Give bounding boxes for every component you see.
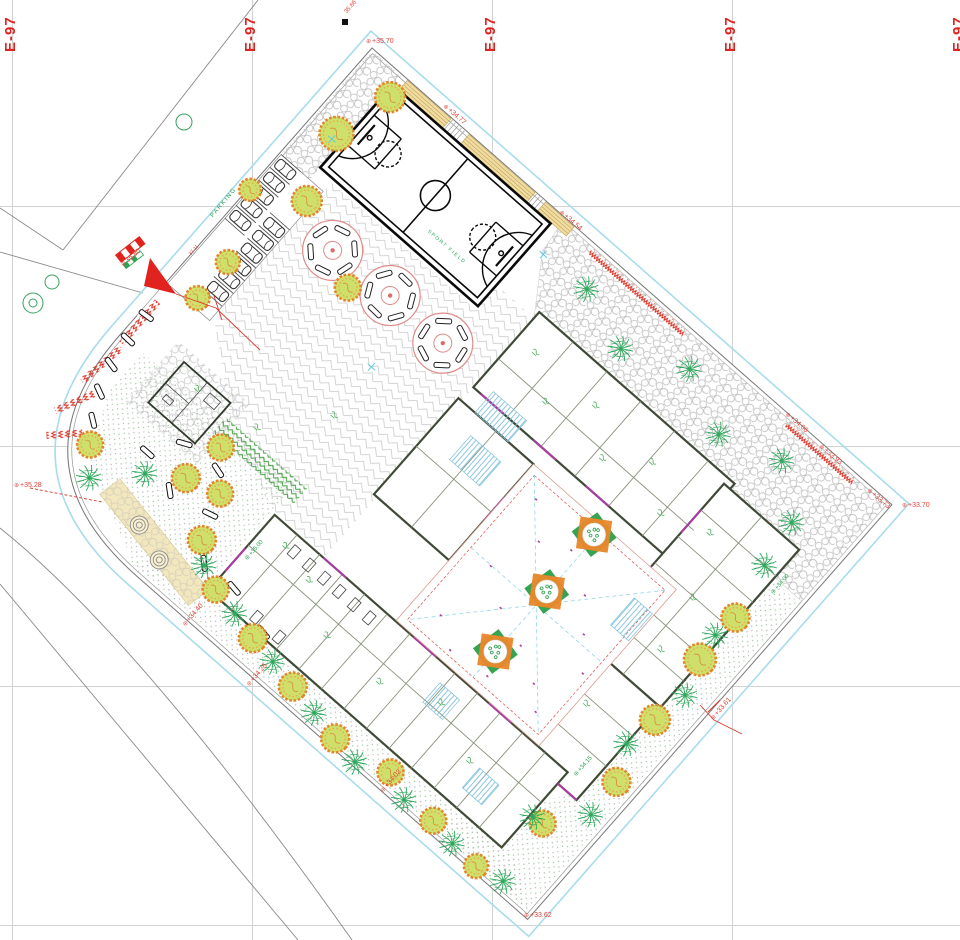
survey-circle bbox=[176, 114, 192, 130]
benchmark-icon: ⊕ bbox=[14, 483, 19, 489]
label-text: +35.70 bbox=[372, 38, 394, 45]
level-label: ⊕+35.70 bbox=[366, 38, 394, 45]
gazebo-bench bbox=[308, 244, 314, 260]
benchmark-icon: ⊕ bbox=[902, 503, 907, 509]
label-text: +33.70 bbox=[908, 502, 930, 509]
gazebo-bench bbox=[434, 362, 450, 368]
gazebo-bench bbox=[436, 318, 452, 324]
label-text: +35.28 bbox=[20, 482, 42, 489]
label-text: +33.62 bbox=[530, 912, 552, 919]
survey-circle bbox=[29, 299, 37, 307]
parcel-line bbox=[0, 208, 63, 250]
benchmark-icon: ⊕ bbox=[366, 39, 371, 45]
level-label: ⊕+33.62 bbox=[524, 912, 552, 919]
gazebo-bench bbox=[352, 241, 358, 257]
level-label: ⊕+35.28 bbox=[14, 482, 42, 489]
benchmark-icon: ⊕ bbox=[524, 913, 529, 919]
site-plan-canvas: E-97E-97E-97E-97E-97 bbox=[0, 0, 960, 940]
level-label: ⊕+33.70 bbox=[902, 502, 930, 509]
